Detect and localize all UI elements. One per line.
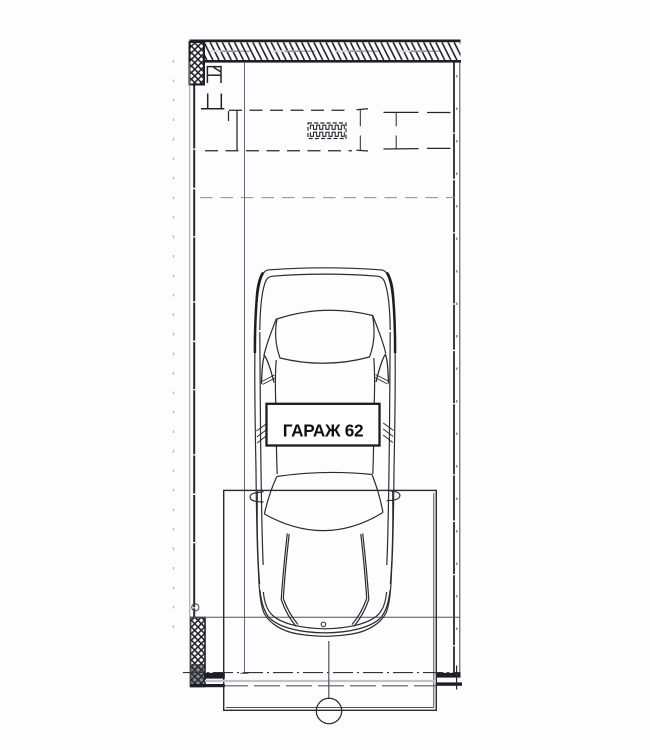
svg-text:ГАРАЖ 62: ГАРАЖ 62 bbox=[283, 421, 363, 441]
